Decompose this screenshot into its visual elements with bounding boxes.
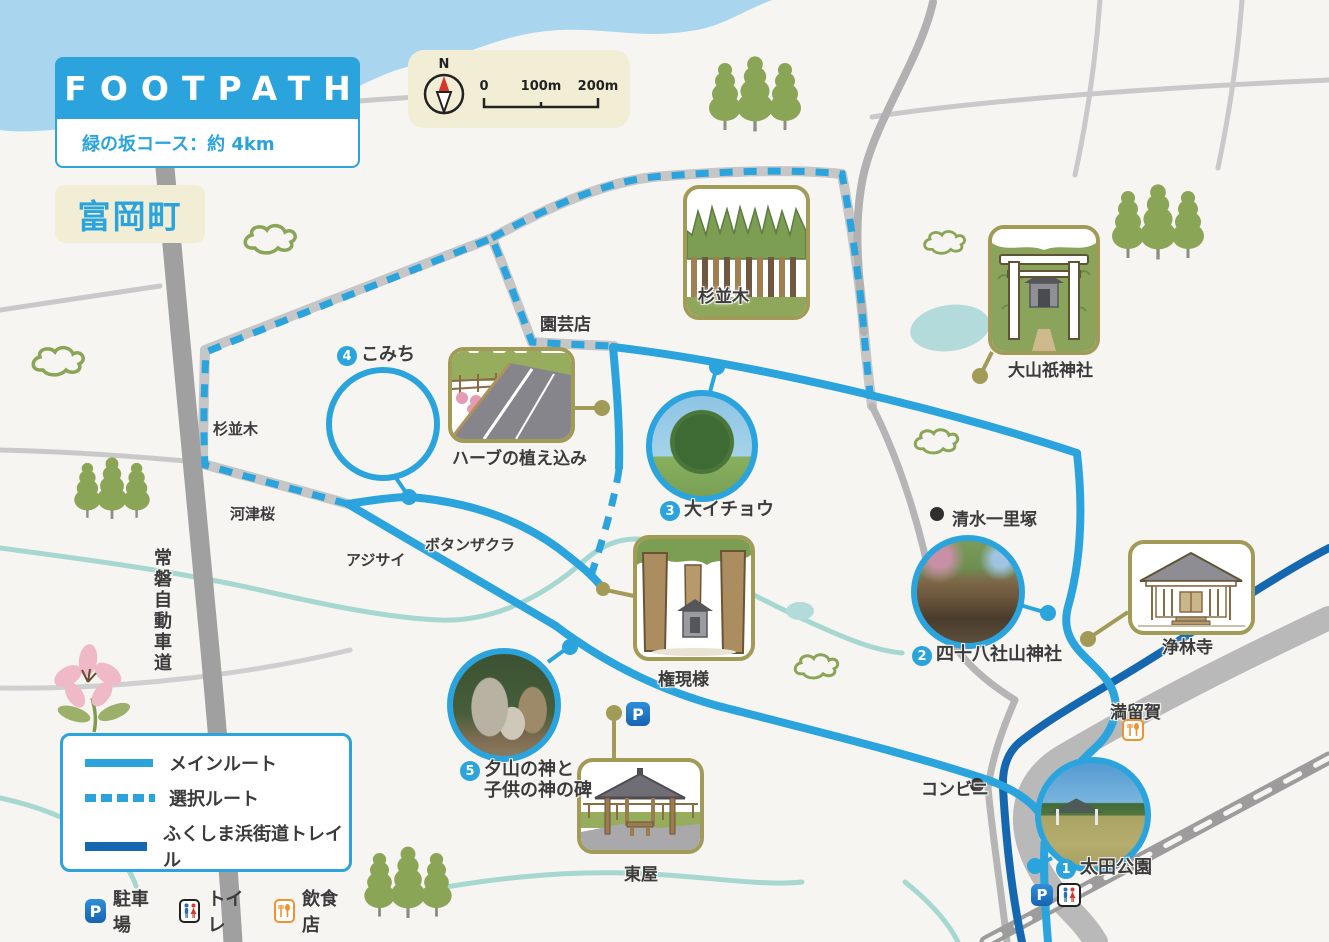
suginamiki-left-label: 杉並木 — [213, 418, 258, 439]
toilet-icon-ota — [1057, 883, 1081, 907]
gongensama-icon — [633, 535, 755, 661]
main-route-sample — [85, 759, 153, 767]
ichirizuka-label: 清水一里塚 — [952, 505, 1037, 530]
trail-sample — [85, 842, 147, 851]
expressway-label: 常磐自動車道 — [148, 548, 174, 674]
legend-optional-route: 選択ルート — [85, 785, 349, 811]
poi-ota-park: 1 太田公園 — [1056, 858, 1152, 879]
ichirizuka-dot — [930, 507, 944, 521]
restaurant-icon-maruka — [1122, 719, 1144, 741]
compass-scale-art: N 0 100m 200m — [408, 50, 630, 128]
poi-1-badge: 1 — [1056, 859, 1076, 879]
oyamazumi-icon — [988, 225, 1100, 355]
scale-100m: 100m — [521, 79, 562, 94]
town-label: 富岡町 — [78, 190, 183, 238]
course-box: 緑の坂コース：約 4km — [55, 119, 360, 168]
legend-box: メインルート 選択ルート ふくしま浜街道トレイル P 駐車場 トイレ — [60, 733, 352, 872]
scale-bar — [484, 98, 598, 107]
konbini-label: コンビニ — [921, 775, 989, 800]
scale-0: 0 — [479, 79, 488, 94]
title-banner: FOOTPATH — [55, 57, 360, 119]
engeiten-label: 園芸店 — [540, 310, 591, 335]
jorinji-icon — [1128, 540, 1255, 635]
legend-amenities: P 駐車場 トイレ 飲食店 — [85, 885, 349, 937]
poi-3-badge: 3 — [660, 501, 680, 521]
oicho-photo — [646, 390, 758, 502]
jorinji-label: 浄林寺 — [1162, 633, 1213, 658]
azumaya-icon — [577, 758, 704, 854]
azumaya-label: 東屋 — [624, 860, 658, 885]
poi-komichi: 4 こみち — [337, 345, 415, 366]
map-title: FOOTPATH — [51, 69, 363, 108]
course-label: 緑の坂コース：約 4km — [82, 130, 275, 156]
parking-icon-legend: P — [85, 899, 106, 923]
poi-2-badge: 2 — [912, 646, 932, 666]
komichi-photo — [326, 367, 440, 481]
oyamazumi-label: 大山祇神社 — [1008, 356, 1093, 381]
compass-scale-box: N 0 100m 200m — [408, 50, 630, 128]
scale-200m: 200m — [578, 79, 619, 94]
kawazuzakura-label: 河津桜 — [230, 503, 275, 524]
pond-small — [786, 602, 814, 620]
ajisai-label: アジサイ — [346, 549, 405, 570]
poi-4-badge: 4 — [337, 346, 357, 366]
shrine48-photo — [911, 535, 1025, 649]
footpath-map: FOOTPATH 緑の坂コース：約 4km 富岡町 N 0 100m 200m — [0, 0, 1329, 942]
pond — [907, 300, 993, 357]
sekihi-photo — [447, 648, 561, 762]
poi-5-badge: 5 — [460, 761, 480, 781]
suginamiki-top-label: 杉並木 — [698, 282, 749, 307]
optional-route-sample — [85, 794, 155, 802]
compass-needle-south — [437, 92, 451, 112]
herb-icon — [448, 347, 575, 443]
toilet-icon-legend — [179, 899, 200, 923]
botanzakura-label: ボタンザクラ — [425, 534, 515, 555]
parking-icon-ota: P — [1031, 884, 1053, 906]
town-box: 富岡町 — [55, 185, 205, 243]
compass-north-label: N — [439, 57, 450, 72]
poi-shrine48: 2 四十八社山神社 — [912, 645, 1062, 666]
parking-icon-azumaya: P — [626, 702, 650, 726]
legend-trail: ふくしま浜街道トレイル — [85, 820, 349, 872]
ota-park-photo — [1035, 757, 1151, 873]
restaurant-icon-legend — [274, 899, 295, 923]
poi-sekihi: 5 夕山の神と 子供の神の碑 — [460, 760, 592, 801]
herb-label: ハーブの植え込み — [452, 444, 587, 469]
gongensama-label: 権現様 — [658, 665, 709, 690]
legend-main-route: メインルート — [85, 750, 349, 776]
park-pavilion-post — [1056, 809, 1059, 826]
park-pavilion-post — [1095, 809, 1098, 826]
poi-oicho: 3 大イチョウ — [660, 500, 774, 521]
